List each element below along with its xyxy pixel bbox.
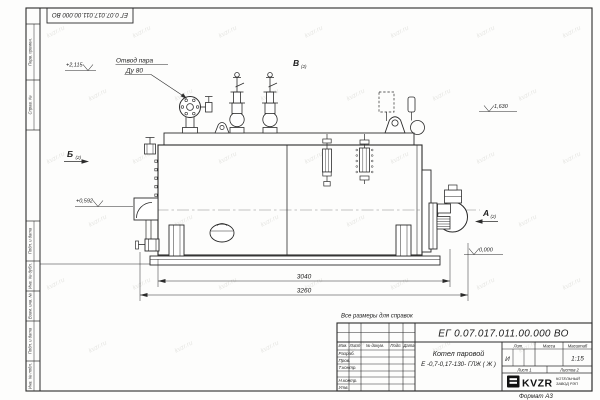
title-col-docnum: № докум. xyxy=(366,343,384,348)
callout-steam-line1: Отвод пара xyxy=(116,57,154,65)
title-lit-label: Лит. xyxy=(513,343,524,348)
title-scale-value: 1:15 xyxy=(571,356,584,363)
lifting-lug-left xyxy=(215,123,229,134)
title-row-razrab: Разраб. xyxy=(339,351,355,356)
view-label-b: Б xyxy=(67,149,73,159)
view-label-a: А xyxy=(482,208,489,218)
side-label-inv-podl: Инв. № подл. xyxy=(28,363,33,389)
safety-valve-2 xyxy=(262,73,278,134)
watermark-text: kvzr.ru xyxy=(46,150,67,165)
level-gauge-2 xyxy=(356,134,373,184)
burner-motor-grille xyxy=(437,217,450,230)
title-row-prov: Пров. xyxy=(339,358,351,363)
watermark-text: kvzr.ru xyxy=(476,24,497,39)
level-gauge-1 xyxy=(323,134,332,186)
watermark-text: kvzr.ru xyxy=(132,276,153,291)
side-label-podp-data-1: Подп. и дата xyxy=(28,227,33,254)
title-mass-label: Масса xyxy=(543,343,556,348)
watermark-text: kvzr.ru xyxy=(304,150,325,165)
watermark-text: kvzr.ru xyxy=(562,24,583,39)
view-label-a-sub: (2) xyxy=(491,214,497,219)
manhole xyxy=(210,224,234,243)
safety-valve-1 xyxy=(229,73,245,134)
watermark-text: kvzr.ru xyxy=(562,276,583,291)
watermark-text: kvzr.ru xyxy=(218,24,239,39)
support-post-right xyxy=(396,225,411,256)
title-col-data: Дата xyxy=(402,343,415,348)
title-col-izm: Изм. xyxy=(339,343,348,348)
reference-note: Все размеры для справок xyxy=(341,314,414,320)
watermark-text: kvzr.ru xyxy=(88,87,109,102)
view-label-v-sub: (2) xyxy=(301,64,307,69)
view-arrow-a xyxy=(475,219,498,223)
support-post-left xyxy=(169,225,184,256)
watermark-text: kvzr.ru xyxy=(218,276,239,291)
side-label-vzam-inv: Взам. инв. № xyxy=(28,293,33,319)
kvzr-logo-text: KVZR xyxy=(522,378,553,390)
watermark-text: kvzr.ru xyxy=(304,24,325,39)
watermark-text: kvzr.ru xyxy=(260,213,281,228)
title-doc-number: ЕГ 0.07.017.011.00.000 ВО xyxy=(438,329,568,340)
kvzr-logo-icon xyxy=(507,376,520,388)
callout-steam-line2: Ду 80 xyxy=(125,68,143,75)
watermark-text: kvzr.ru xyxy=(88,213,109,228)
burner xyxy=(429,185,468,249)
title-row-tkontr: Т.контр. xyxy=(339,365,357,370)
elev-0000: 0,000 xyxy=(479,248,494,254)
elbow-fitting xyxy=(134,198,158,239)
title-product-line1: Котел паровой xyxy=(433,349,485,358)
watermark-text: kvzr.ru xyxy=(88,339,109,354)
side-label-inv-dubl: Инв. № дубл. xyxy=(28,263,33,289)
title-lit-value: И xyxy=(505,356,510,363)
watermark-text: kvzr.ru xyxy=(476,276,497,291)
drum-top-strip xyxy=(164,133,414,145)
watermark-text: kvzr.ru xyxy=(346,87,367,102)
boiler-drawing xyxy=(40,73,480,266)
watermark-text: kvzr.ru xyxy=(432,87,453,102)
sensor-dashed-box xyxy=(379,92,394,112)
hook-pipe xyxy=(408,97,425,135)
drain-stub xyxy=(136,239,160,251)
watermark-text: kvzr.ru xyxy=(390,24,411,39)
side-label-sprav-n: Справ. № xyxy=(28,95,33,114)
elev-plus2115: +2,115 xyxy=(66,63,84,69)
left-top-valve xyxy=(145,138,156,155)
elev-plus0592: +0,592 xyxy=(76,199,93,205)
watermark-text: kvzr.ru xyxy=(46,24,67,39)
dim-3040: 3040 xyxy=(297,274,312,281)
title-product-line2: Е -0,7-0,17-130- ГЛЖ ( Ж ) xyxy=(421,361,496,368)
watermark-text: kvzr.ru xyxy=(518,87,539,102)
watermark-text: kvzr.ru xyxy=(260,339,281,354)
title-sheet: Лист 1 xyxy=(516,367,531,372)
side-label-perv-primen: Перв. примен. xyxy=(28,38,33,66)
title-col-list: Лист xyxy=(349,343,361,348)
elev-1630: 1,630 xyxy=(494,104,509,110)
watermark-text: kvzr.ru xyxy=(132,24,153,39)
front-flange-bolts xyxy=(155,160,157,196)
boiler-shell xyxy=(158,145,422,255)
watermark-text: kvzr.ru xyxy=(390,150,411,165)
side-label-podp-data-2: Подп. и дата xyxy=(28,327,33,354)
title-row-nkontr: Н.контр. xyxy=(339,378,358,383)
view-label-b-sub: (2) xyxy=(76,155,82,160)
watermark-text: kvzr.ru xyxy=(218,150,239,165)
watermark-text: kvzr.ru xyxy=(390,276,411,291)
watermark-text: kvzr.ru xyxy=(174,339,195,354)
watermark-text: kvzr.ru xyxy=(518,213,539,228)
dim-3260: 3260 xyxy=(297,288,312,295)
title-sheets: Листов 2 xyxy=(559,367,579,372)
watermark-text: kvzr.ru xyxy=(346,213,367,228)
kvzr-caption-line1: КОТЕЛЬНЫЙ xyxy=(556,377,580,381)
title-col-podp: Подп. xyxy=(390,343,401,348)
base-rail xyxy=(150,256,440,265)
watermark-text: kvzr.ru xyxy=(562,150,583,165)
title-scale-label: Масштаб xyxy=(568,343,588,348)
format-note: Формат А3 xyxy=(519,393,553,400)
drawing-sheet: kvzr.rukvzr.rukvzr.rukvzr.rukvzr.rukvzr.… xyxy=(0,0,600,400)
watermark-text: kvzr.ru xyxy=(476,150,497,165)
top-stamp-number: ЕГ 0.07.017.011.00.000 ВО xyxy=(52,11,128,18)
title-row-utv: Утв. xyxy=(339,385,349,390)
kvzr-caption-line2: ЗАВОД РЭП xyxy=(556,382,578,386)
lifting-lug-right xyxy=(385,117,405,133)
steam-outlet-flange xyxy=(180,97,213,134)
watermark-text: kvzr.ru xyxy=(46,276,67,291)
view-label-v: В xyxy=(293,58,299,68)
